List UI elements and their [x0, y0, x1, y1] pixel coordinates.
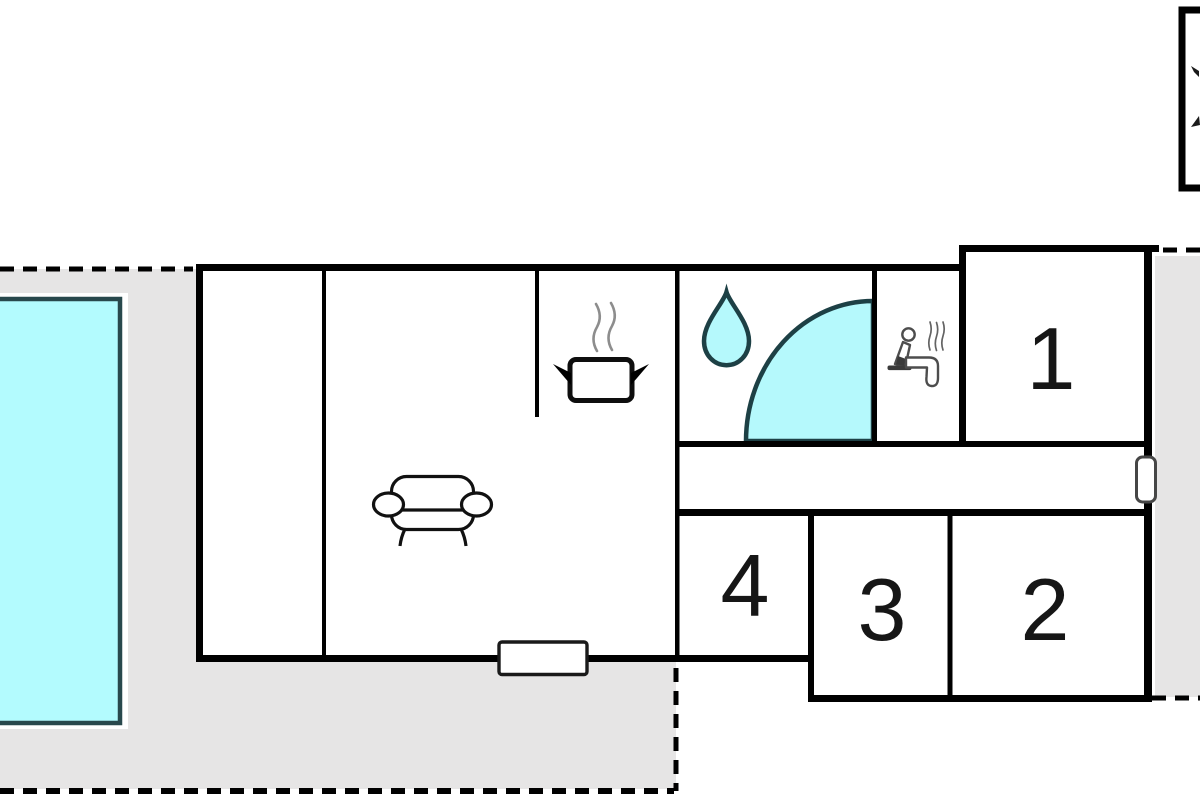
svg-text:1: 1 — [1027, 309, 1076, 408]
svg-text:2: 2 — [1021, 560, 1070, 659]
svg-text:3: 3 — [858, 560, 907, 659]
svg-text:4: 4 — [721, 536, 770, 635]
